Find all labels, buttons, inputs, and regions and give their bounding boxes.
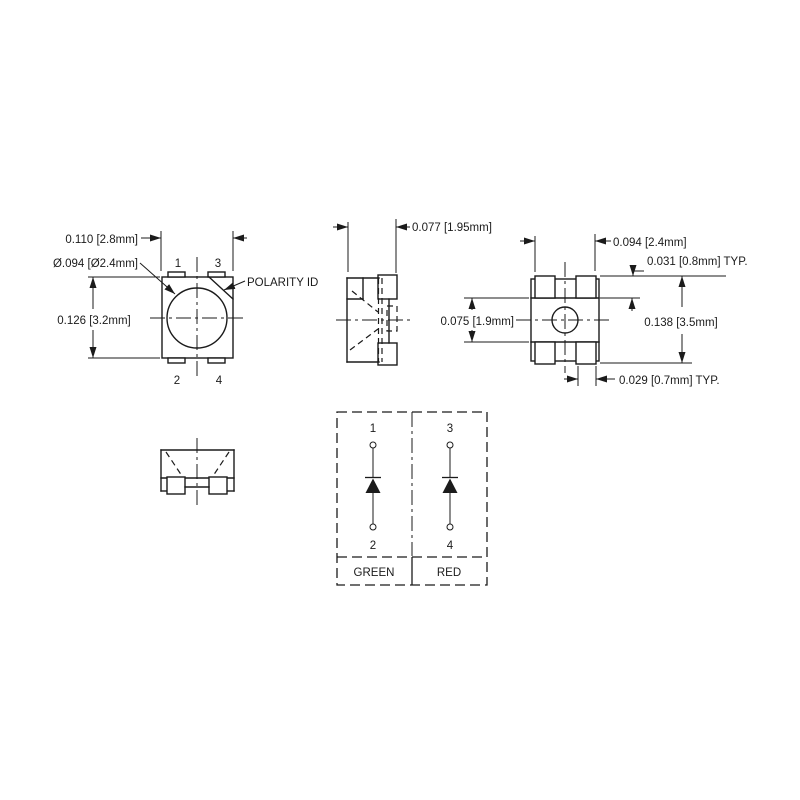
dim-body-gap-label: 0.075 [1.9mm] (440, 316, 514, 328)
front-view (161, 438, 234, 505)
terminal-circle (447, 442, 453, 448)
dim-pad-width-label: 0.029 [0.7mm] TYP. (619, 375, 720, 387)
green-channel-label: GREEN (354, 567, 395, 579)
dim-height-label: 0.126 [3.2mm] (57, 315, 131, 327)
schematic-pin-2-label: 2 (370, 540, 376, 552)
top-view: 0.110 [2.8mm] Ø.094 [Ø2.4mm] 0.126 [3.2m… (53, 231, 318, 387)
front-pad-right (209, 477, 227, 494)
diode-red-symbol (443, 479, 458, 494)
pin-1-label: 1 (175, 258, 181, 270)
solder-pad-top-right (576, 276, 596, 298)
schematic: 1 2 3 4 GREEN RED (337, 412, 487, 585)
dim-depth-label: 0.077 [1.95mm] (412, 222, 492, 234)
schematic-pin-1-label: 1 (370, 423, 376, 435)
terminal-circle (370, 524, 376, 530)
pad-tab-bottom-left (168, 358, 185, 363)
mechanical-drawing-svg: 0.110 [2.8mm] Ø.094 [Ø2.4mm] 0.126 [3.2m… (0, 0, 800, 800)
leader-arrow-down (633, 271, 644, 276)
side-pad-bottom (378, 343, 397, 365)
polarity-id-label: POLARITY ID (247, 277, 318, 289)
front-pad-left (167, 477, 185, 494)
reflector-cone-hidden (352, 291, 378, 312)
terminal-circle (370, 442, 376, 448)
dim-overall-height-label: 0.138 [3.5mm] (644, 317, 718, 329)
dim-lens-diameter-label: Ø.094 [Ø2.4mm] (53, 258, 138, 270)
dim-width-label: 0.110 [2.8mm] (65, 234, 138, 246)
reflector-cone-hidden (166, 452, 182, 476)
pad-tab-top-left (168, 272, 185, 277)
pad-tab-top-right (208, 272, 225, 277)
solder-pad-bottom-right (576, 342, 596, 364)
solder-pad-top-left (535, 276, 555, 298)
dim-pad-span-label: 0.094 [2.4mm] (613, 237, 687, 249)
pin-2-label: 2 (174, 375, 180, 387)
diode-green-symbol (366, 479, 381, 494)
bottom-view: 0.094 [2.4mm] 0.031 [0.8mm] TYP. 0.075 [… (440, 234, 747, 387)
leader-line (140, 263, 175, 294)
terminal-circle (447, 524, 453, 530)
schematic-pin-3-label: 3 (447, 423, 453, 435)
schematic-pin-4-label: 4 (447, 540, 454, 552)
side-view: 0.077 [1.95mm] (333, 219, 492, 365)
reflector-cone-hidden (350, 329, 378, 350)
leader-line (224, 281, 245, 290)
datasheet-drawing-page: 0.110 [2.8mm] Ø.094 [Ø2.4mm] 0.126 [3.2m… (0, 0, 800, 800)
pad-tab-bottom-right (208, 358, 225, 363)
red-channel-label: RED (437, 567, 461, 579)
pin-3-label: 3 (215, 258, 221, 270)
dim-pad-height-label: 0.031 [0.8mm] TYP. (647, 256, 748, 268)
side-pad-top (378, 275, 397, 299)
solder-pad-bottom-left (535, 342, 555, 364)
pin-4-label: 4 (216, 375, 223, 387)
reflector-cone-hidden (213, 452, 229, 476)
